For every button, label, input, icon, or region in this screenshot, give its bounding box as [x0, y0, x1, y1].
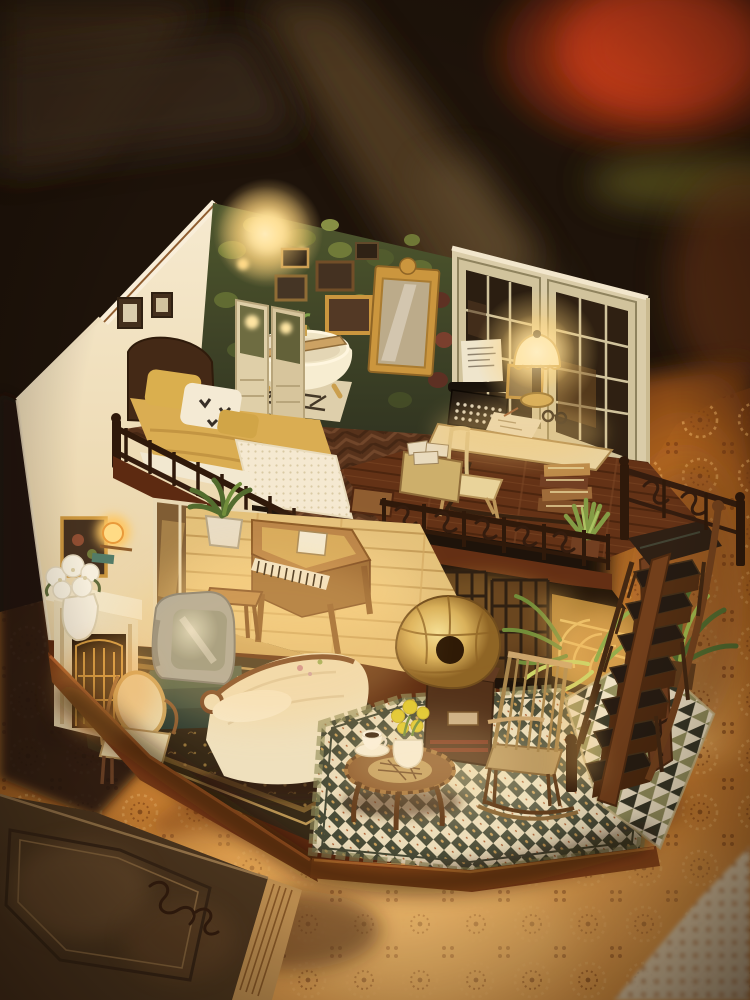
dollhouse-photo: [0, 0, 750, 1000]
warm-cast: [0, 0, 750, 1000]
photo-stage: [0, 0, 750, 1000]
